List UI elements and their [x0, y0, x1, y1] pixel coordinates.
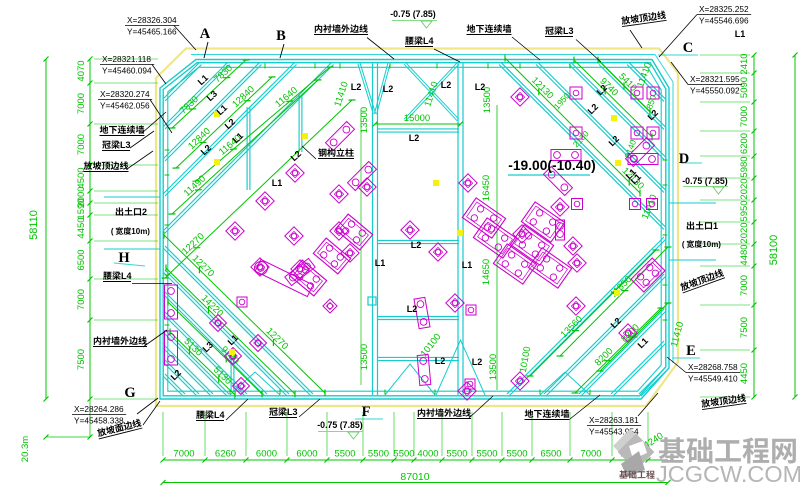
- svg-text:F: F: [362, 404, 371, 420]
- svg-text:X=28264.286: X=28264.286: [74, 404, 124, 414]
- svg-text:X=28320.274: X=28320.274: [100, 89, 150, 99]
- svg-text:6200: 6200: [739, 133, 750, 154]
- svg-text:C: C: [683, 40, 693, 56]
- svg-text:6500: 6500: [76, 249, 87, 270]
- svg-text:7000: 7000: [76, 289, 87, 310]
- svg-text:-19.00(-10.40): -19.00(-10.40): [508, 158, 595, 173]
- svg-text:6260: 6260: [215, 449, 236, 460]
- svg-text:4500: 4500: [76, 167, 87, 188]
- svg-text:L1: L1: [462, 260, 473, 270]
- svg-text:(: (: [111, 227, 114, 236]
- svg-text:5980: 5980: [739, 156, 750, 177]
- svg-text:87010: 87010: [400, 471, 429, 483]
- svg-text:L2: L2: [435, 356, 446, 366]
- svg-text:X=28321.595: X=28321.595: [690, 74, 740, 84]
- svg-text:5500: 5500: [506, 449, 527, 460]
- svg-text:1: 1: [713, 221, 718, 231]
- svg-text:L1: L1: [375, 258, 386, 268]
- svg-text:Y=45462.056: Y=45462.056: [100, 101, 150, 111]
- svg-text:Y=45458.338: Y=45458.338: [74, 416, 124, 426]
- svg-text:L2: L2: [411, 240, 422, 250]
- svg-text:7500: 7500: [739, 317, 750, 338]
- svg-text:1590: 1590: [76, 198, 87, 219]
- svg-text:7000: 7000: [76, 93, 87, 114]
- svg-text:4480: 4480: [739, 244, 750, 265]
- svg-text:Y=45546.696: Y=45546.696: [699, 16, 749, 26]
- svg-text:13500: 13500: [488, 354, 499, 380]
- svg-text:2410: 2410: [739, 53, 750, 74]
- svg-text:4450: 4450: [739, 363, 750, 384]
- svg-text:Y=45460.094: Y=45460.094: [102, 66, 152, 76]
- svg-text:7000: 7000: [739, 106, 750, 127]
- svg-text:-0.75 (7.85): -0.75 (7.85): [317, 420, 363, 430]
- svg-text:L1: L1: [272, 178, 283, 188]
- svg-text:58110: 58110: [28, 210, 40, 240]
- svg-text:5500: 5500: [476, 449, 497, 460]
- svg-text:5500: 5500: [334, 449, 355, 460]
- svg-text:A: A: [200, 26, 211, 42]
- svg-text:L2: L2: [383, 84, 394, 94]
- svg-text:13500: 13500: [359, 107, 370, 133]
- svg-text:X=28321.118: X=28321.118: [102, 54, 151, 64]
- svg-text:4070: 4070: [76, 60, 87, 81]
- svg-text:7000: 7000: [580, 449, 601, 460]
- svg-text:D: D: [679, 151, 689, 167]
- svg-text:L2: L2: [407, 304, 418, 314]
- svg-text:L3: L3: [120, 140, 131, 150]
- svg-text:5500: 5500: [446, 449, 467, 460]
- svg-text:L2: L2: [441, 80, 452, 90]
- svg-text:2020: 2020: [739, 222, 750, 243]
- svg-text:L2: L2: [409, 133, 420, 143]
- svg-text:JCGCW.COM: JCGCW.COM: [656, 461, 800, 487]
- svg-text:L2: L2: [472, 357, 483, 367]
- svg-text:4450: 4450: [76, 217, 87, 238]
- svg-text:5500: 5500: [393, 449, 414, 460]
- svg-text:7000: 7000: [173, 449, 194, 460]
- svg-text:5950: 5950: [739, 200, 750, 221]
- svg-text:G: G: [124, 385, 135, 401]
- svg-text:L4: L4: [423, 36, 434, 46]
- svg-text:5090: 5090: [739, 77, 750, 98]
- svg-text:5500: 5500: [368, 449, 389, 460]
- svg-text:Y=45550.092: Y=45550.092: [690, 86, 740, 96]
- svg-text:14650: 14650: [481, 259, 492, 285]
- svg-text:X=28326.304: X=28326.304: [127, 15, 177, 25]
- svg-text:6000: 6000: [296, 449, 317, 460]
- svg-text:B: B: [276, 28, 286, 44]
- svg-text:7500: 7500: [76, 349, 87, 370]
- svg-text:L3: L3: [563, 26, 574, 36]
- svg-text:L2: L2: [475, 82, 486, 92]
- svg-text:X=28268.758: X=28268.758: [688, 362, 738, 372]
- svg-text:20.3m: 20.3m: [20, 436, 31, 462]
- svg-text:X=28263.181: X=28263.181: [589, 415, 639, 425]
- svg-text:15000: 15000: [404, 113, 430, 124]
- svg-text:H: H: [118, 250, 130, 266]
- svg-text:6500: 6500: [540, 449, 561, 460]
- svg-text:L4: L4: [214, 410, 225, 420]
- svg-text:10m): 10m): [131, 227, 150, 236]
- svg-text:(: (: [682, 240, 685, 249]
- svg-text:E: E: [686, 343, 696, 359]
- svg-text:L2: L2: [351, 82, 362, 92]
- svg-text:2020: 2020: [739, 178, 750, 199]
- svg-text:2: 2: [142, 207, 147, 217]
- svg-text:L3: L3: [287, 407, 298, 417]
- svg-text:Y=45465.166: Y=45465.166: [127, 27, 177, 37]
- svg-text:13500: 13500: [359, 344, 370, 370]
- svg-text:4000: 4000: [417, 449, 438, 460]
- svg-text:-0.75 (7.85): -0.75 (7.85): [682, 176, 728, 186]
- svg-text:X=28325.252: X=28325.252: [699, 4, 749, 14]
- svg-text:Y=45549.410: Y=45549.410: [688, 374, 738, 384]
- svg-text:L4: L4: [121, 271, 132, 281]
- svg-text:7000: 7000: [76, 134, 87, 155]
- svg-text:6000: 6000: [256, 449, 277, 460]
- svg-text:-0.75 (7.85): -0.75 (7.85): [390, 9, 436, 19]
- svg-text:10m): 10m): [702, 240, 721, 249]
- svg-text:L1: L1: [735, 29, 746, 39]
- svg-text:16450: 16450: [481, 175, 492, 201]
- svg-text:7000: 7000: [739, 275, 750, 296]
- svg-text:58100: 58100: [768, 235, 780, 266]
